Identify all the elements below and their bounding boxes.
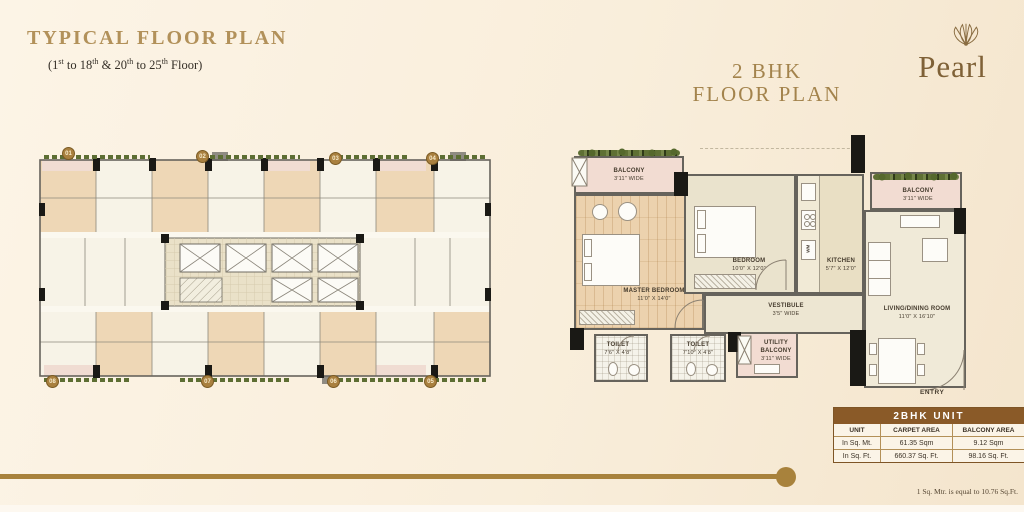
- gold-divider-dot: [776, 467, 796, 487]
- table-cell: 9.12 Sqm: [952, 436, 1024, 449]
- table-row: In Sq. Ft. 660.37 Sq. Ft. 98.16 Sq. Ft.: [834, 449, 1024, 462]
- unit-number-badge: 08: [46, 375, 59, 388]
- plant-dots: [589, 149, 958, 181]
- area-table-header-row: UNIT CARPET AREA BALCONY AREA: [834, 424, 1024, 436]
- area-table: 2BHK UNIT UNIT CARPET AREA BALCONY AREA …: [833, 407, 1024, 463]
- table-cell: 98.16 Sq. Ft.: [952, 449, 1024, 462]
- typical-floor-plan: 01 02 03 04 08 07 06 05: [30, 148, 500, 388]
- bhk-floor-plan: BALCONY3'11" WIDE MASTER BEDROOM11'0" X …: [570, 146, 972, 398]
- bhk-title-line2: FLOOR PLAN: [672, 83, 862, 106]
- page-title: TYPICAL FLOOR PLAN: [27, 27, 287, 50]
- unit-number-badge: 06: [327, 375, 340, 388]
- table-cell: In Sq. Ft.: [834, 449, 880, 462]
- unit-number-badge: 03: [329, 152, 342, 165]
- unit-number-badge: 07: [201, 375, 214, 388]
- unit-number-badge: 05: [424, 375, 437, 388]
- unit-number-badge: 04: [426, 152, 439, 165]
- table-cell: 660.37 Sq. Ft.: [880, 449, 952, 462]
- table-cell: In Sq. Mt.: [834, 436, 880, 449]
- unit-number-badge: 02: [196, 150, 209, 163]
- entry-label: ENTRY: [920, 390, 944, 397]
- gold-divider-line: [0, 474, 788, 479]
- table-cell: 61.35 Sqm: [880, 436, 952, 449]
- bottom-edge-strip: [0, 505, 1024, 512]
- column-header: BALCONY AREA: [952, 424, 1024, 436]
- bhk-plan-title: 2 BHK FLOOR PLAN: [672, 60, 862, 105]
- column-header: UNIT: [834, 424, 880, 436]
- shell-icon: [946, 22, 986, 48]
- conversion-footnote: 1 Sq. Mtr. is equal to 10.76 Sq.Ft.: [838, 487, 1018, 496]
- lift-core: [165, 238, 360, 306]
- unit-number-badge: 01: [62, 147, 75, 160]
- typical-floor-plan-drawing: [30, 148, 500, 388]
- column-header: CARPET AREA: [880, 424, 952, 436]
- bhk-title-line1: 2 BHK: [672, 60, 862, 83]
- page-subtitle: (1st to 18th & 20th to 25th Floor): [48, 57, 202, 73]
- area-table-title: 2BHK UNIT: [834, 408, 1024, 424]
- brochure-page: TYPICAL FLOOR PLAN (1st to 18th & 20th t…: [0, 0, 1024, 512]
- brand-name: Pearl: [905, 51, 1000, 82]
- brand-logo: Pearl: [905, 22, 1000, 82]
- door-arcs-overlay: [570, 146, 972, 398]
- table-row: In Sq. Mt. 61.35 Sqm 9.12 Sqm: [834, 436, 1024, 449]
